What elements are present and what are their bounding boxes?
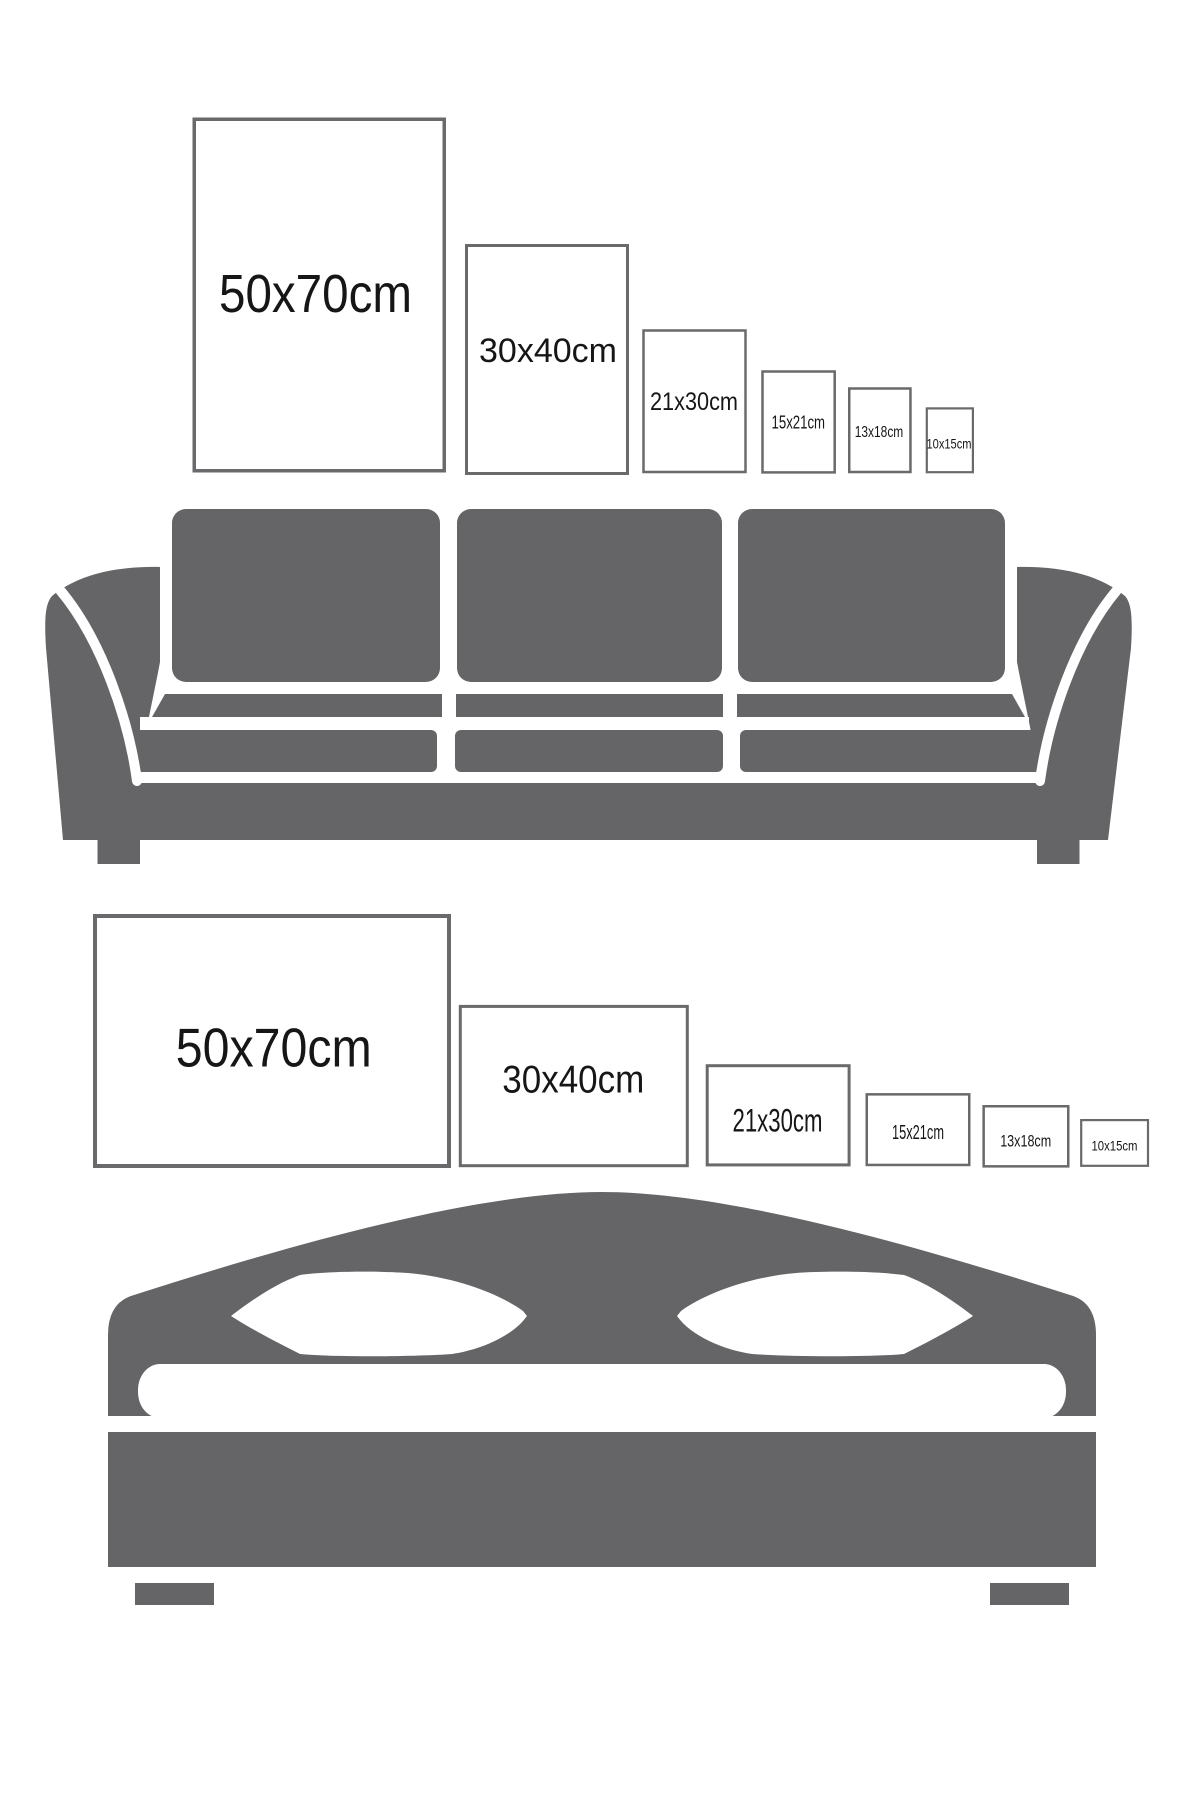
svg-text:13x18cm: 13x18cm (855, 424, 904, 441)
svg-text:15x21cm: 15x21cm (772, 412, 826, 433)
svg-text:10x15cm: 10x15cm (1092, 1139, 1138, 1154)
svg-text:13x18cm: 13x18cm (1000, 1133, 1051, 1151)
svg-text:50x70cm: 50x70cm (176, 1018, 372, 1079)
svg-text:15x21cm: 15x21cm (892, 1121, 944, 1144)
svg-text:30x40cm: 30x40cm (502, 1059, 644, 1102)
svg-text:30x40cm: 30x40cm (479, 332, 617, 370)
svg-text:21x30cm: 21x30cm (650, 388, 738, 416)
svg-text:21x30cm: 21x30cm (733, 1103, 823, 1139)
svg-text:50x70cm: 50x70cm (219, 264, 412, 324)
svg-text:10x15cm: 10x15cm (927, 436, 972, 452)
